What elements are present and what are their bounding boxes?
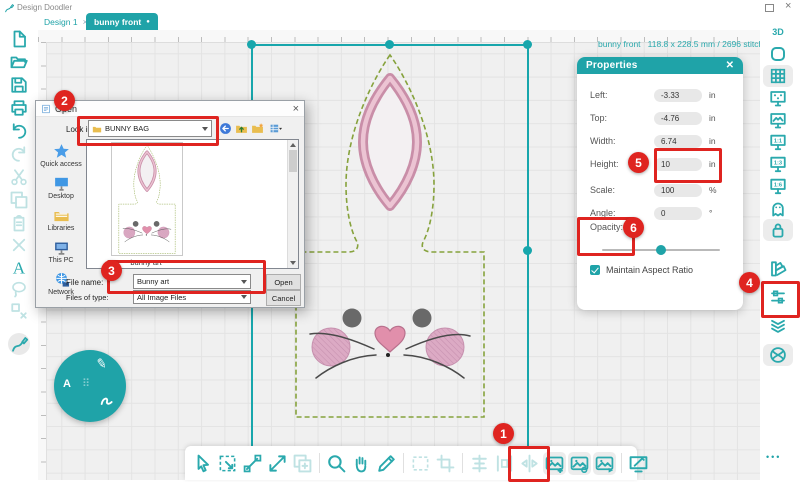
property-label: Left: — [590, 90, 654, 100]
left-input[interactable]: -3.33 — [654, 89, 702, 102]
maintain-aspect-label: Maintain Aspect Ratio — [606, 265, 693, 275]
scroll-down-icon[interactable] — [290, 261, 296, 265]
property-unit: % — [709, 185, 717, 195]
property-unit: in — [709, 113, 716, 123]
dialog-places-bar: Quick accessDesktopLibrariesThis PCNetwo… — [36, 143, 86, 296]
property-label: Top: — [590, 113, 654, 123]
titlebar: Design Doodler Design 1 × bunny front ● — [0, 0, 800, 30]
callout-badge-2: 2 — [54, 90, 75, 111]
property-row-top: Top: -4.76 in — [577, 111, 743, 125]
app-logo-icon — [4, 3, 14, 13]
place-desktop[interactable]: Desktop — [36, 175, 86, 200]
place-label: This PC — [49, 257, 74, 264]
property-row-left: Left: -3.33 in — [577, 88, 743, 102]
unsaved-dot-icon: ● — [146, 19, 150, 25]
new-folder-icon[interactable] — [251, 122, 264, 135]
properties-title: Properties — [586, 60, 726, 71]
highlight-box-stitch-sliders — [761, 281, 800, 318]
up-folder-icon[interactable] — [235, 122, 248, 135]
paste-icon[interactable] — [8, 212, 30, 234]
desktop-icon — [53, 175, 70, 192]
doodle-pen-icon[interactable] — [8, 333, 30, 355]
trace-image-tool-icon[interactable] — [568, 452, 591, 475]
screen-ratio-1-1-icon[interactable]: 1:1 — [763, 131, 793, 153]
dialog-doc-icon — [41, 104, 51, 114]
place-this-pc[interactable]: This PC — [36, 239, 86, 264]
quick-access-icon — [53, 143, 70, 160]
lasso-icon[interactable] — [8, 278, 30, 300]
views-menu-icon[interactable] — [267, 122, 285, 135]
top-input[interactable]: -4.76 — [654, 112, 702, 125]
ghost-mode-icon[interactable] — [763, 197, 793, 219]
highlight-box-import-tool — [508, 446, 550, 482]
file-list[interactable]: bunny art — [86, 139, 299, 269]
lock-position-icon[interactable] — [763, 219, 793, 241]
doodle-fab-button[interactable]: ✎ A ⠿ — [54, 350, 126, 422]
screen-select-icon[interactable] — [763, 87, 793, 109]
back-nav-icon[interactable] — [219, 122, 232, 135]
property-row-scale: Scale: 100 % — [577, 183, 743, 197]
list-scrollbar[interactable] — [287, 140, 298, 268]
delete-icon[interactable] — [8, 234, 30, 256]
dialog-titlebar[interactable]: Open × — [36, 101, 304, 117]
maintain-aspect-row[interactable]: Maintain Aspect Ratio — [590, 265, 693, 275]
new-document-icon[interactable] — [8, 28, 30, 50]
transform-tool-icon[interactable] — [216, 452, 239, 475]
tab-bunny-front[interactable]: bunny front ● — [86, 13, 158, 30]
scale-input[interactable]: 100 — [654, 184, 702, 197]
screen-ratio-1-6-icon[interactable]: 1:6 — [763, 175, 793, 197]
selection-right-line — [527, 44, 529, 480]
export-image-tool-icon[interactable] — [593, 452, 616, 475]
window-restore-button[interactable] — [765, 4, 774, 12]
place-label: Libraries — [48, 225, 75, 232]
callout-badge-4: 4 — [739, 272, 760, 293]
app-title: Design Doodler — [17, 3, 72, 12]
window-close-button[interactable]: × — [785, 0, 791, 12]
tab-label: bunny front — [94, 17, 141, 27]
highlight-box-look-in — [77, 116, 219, 146]
maintain-aspect-checkbox[interactable] — [590, 265, 600, 275]
file-name-label: File name: — [66, 278, 103, 287]
node-edit-tool-icon[interactable] — [241, 452, 264, 475]
property-label: Width: — [590, 136, 654, 146]
dialog-close-icon[interactable]: × — [293, 103, 299, 115]
toolbar-separator — [462, 453, 463, 473]
hoop-frame-icon[interactable] — [763, 43, 793, 65]
drag-dots-icon: ⠿ — [82, 377, 90, 390]
tab-label: Design 1 — [44, 17, 78, 27]
dropdown-caret-icon — [241, 295, 247, 299]
left-toolbar: A — [0, 28, 38, 480]
dialog-title: Open — [55, 104, 289, 114]
svg-text:1:6: 1:6 — [774, 182, 782, 188]
libraries-icon — [53, 207, 70, 224]
pan-tool-icon[interactable] — [350, 452, 373, 475]
draw-screen-tool-icon[interactable] — [627, 452, 650, 475]
property-unit: in — [709, 136, 716, 146]
property-unit: in — [709, 90, 716, 100]
cancel-button[interactable]: Cancel — [266, 290, 301, 306]
text-icon[interactable]: A — [8, 256, 30, 278]
callout-badge-5: 5 — [628, 152, 649, 173]
marquee-tool-icon[interactable] — [409, 452, 432, 475]
redo-icon[interactable] — [8, 143, 30, 165]
stitch-ball-icon[interactable] — [763, 344, 793, 366]
screen-image-icon[interactable] — [763, 109, 793, 131]
crop-tool-icon[interactable] — [434, 452, 457, 475]
zoom-tool-icon[interactable] — [325, 452, 348, 475]
pencil-icon: ✎ — [95, 355, 109, 373]
callout-badge-3: 3 — [101, 260, 122, 281]
property-unit: ° — [709, 208, 712, 218]
property-label: Scale: — [590, 185, 654, 195]
curve-icon — [98, 392, 116, 408]
file-type-label: Files of type: — [66, 293, 109, 302]
properties-panel: Properties ✕ Left: -3.33 in Top: -4.76 i… — [577, 57, 743, 310]
selection-handle-top-left[interactable] — [247, 40, 256, 49]
highlight-box-file-name — [107, 260, 266, 294]
color-fan-icon[interactable] — [763, 257, 793, 279]
callout-badge-1: 1 — [493, 423, 514, 444]
undo-icon[interactable] — [8, 120, 30, 142]
highlight-box-height-field — [654, 148, 722, 183]
callout-badge-6: 6 — [623, 217, 644, 238]
text-tool-icon: A — [63, 378, 71, 390]
angle-input[interactable]: 0 — [654, 207, 702, 220]
open-button[interactable]: Open — [266, 274, 301, 290]
copy-icon[interactable] — [8, 189, 30, 211]
duplicate-tool-icon[interactable] — [291, 452, 314, 475]
cut-icon[interactable] — [8, 166, 30, 188]
align-tool-icon[interactable] — [468, 452, 491, 475]
bottom-toolbar — [185, 446, 637, 480]
selection-handle-top-right[interactable] — [523, 40, 532, 49]
grid-view-icon[interactable] — [763, 65, 793, 87]
place-label: Quick access — [40, 161, 82, 168]
ungroup-icon[interactable] — [8, 300, 30, 322]
reshape-tool-icon[interactable] — [266, 452, 289, 475]
this-pc-icon — [53, 239, 70, 256]
measure-tool-icon[interactable] — [375, 452, 398, 475]
place-label: Desktop — [48, 193, 74, 200]
open-folder-icon[interactable] — [8, 51, 30, 73]
svg-text:1:3: 1:3 — [774, 160, 782, 166]
select-tool-icon[interactable] — [191, 452, 214, 475]
opacity-slider-handle[interactable] — [656, 245, 666, 255]
selection-handle-top-mid[interactable] — [385, 40, 394, 49]
scroll-thumb[interactable] — [289, 150, 297, 172]
svg-text:A: A — [13, 258, 26, 277]
place-libraries[interactable]: Libraries — [36, 207, 86, 232]
properties-header[interactable]: Properties ✕ — [577, 57, 743, 74]
width-input[interactable]: 6.74 — [654, 135, 702, 148]
screen-ratio-1-3-icon[interactable]: 1:3 — [763, 153, 793, 175]
properties-close-icon[interactable]: ✕ — [726, 60, 734, 71]
right-toolbar-overflow[interactable]: ••• — [766, 452, 781, 462]
file-thumbnail[interactable] — [111, 142, 183, 256]
view-3d-icon[interactable]: 3D — [763, 21, 793, 43]
save-icon[interactable] — [8, 74, 30, 96]
print-icon[interactable] — [8, 97, 30, 119]
toolbar-separator — [319, 453, 320, 473]
design-status-text: bunny front 118.8 x 228.5 mm / 2696 stit… — [598, 39, 772, 49]
scroll-up-icon[interactable] — [290, 143, 296, 147]
place-quick-access[interactable]: Quick access — [36, 143, 86, 168]
svg-text:1:1: 1:1 — [774, 138, 782, 144]
property-row-width: Width: 6.74 in — [577, 134, 743, 148]
selection-handle-right-mid[interactable] — [523, 246, 532, 255]
toolbar-separator — [403, 453, 404, 473]
toolbar-separator — [621, 453, 622, 473]
